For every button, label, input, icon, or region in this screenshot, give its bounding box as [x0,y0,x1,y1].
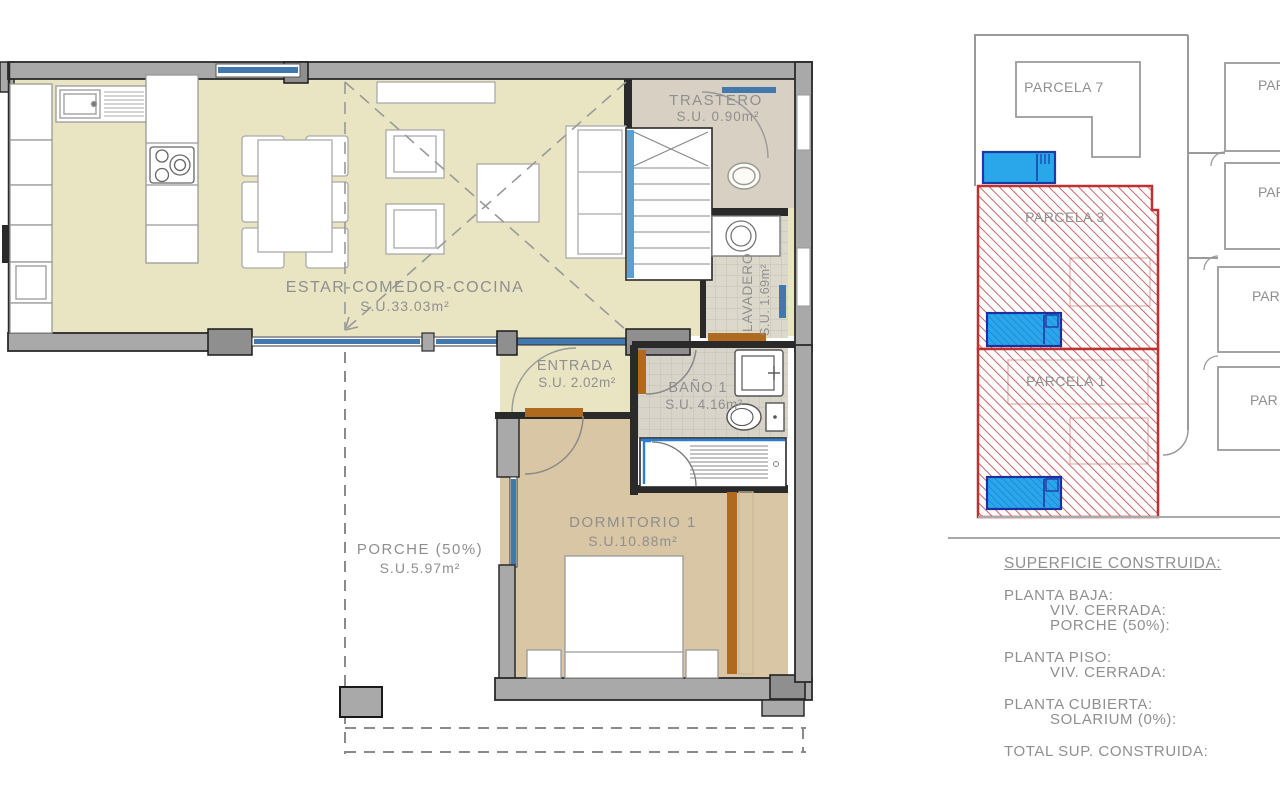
wardrobe [727,492,737,674]
bano-label: BAÑO 1 [668,379,727,396]
porche-area: S.U.5.97m² [380,560,461,576]
wall-right-notch-1 [797,95,810,150]
lavadero-area: S.U. 1.69m² [758,264,772,336]
legend-pb-porche: PORCHE (50%): [1004,618,1280,633]
pool-parcela-1 [987,477,1061,509]
floor-plan: ESTAR-COMEDOR-COCINA S.U.33.03m² TRASTER… [0,62,812,754]
wall-bath-west [630,345,638,495]
legend-pp-viv: VIV. CERRADA: [1004,665,1280,680]
bano-area: S.U. 4.16m² [665,397,743,412]
plan-sheet: ESTAR-COMEDOR-COCINA S.U.33.03m² TRASTER… [0,0,1280,800]
estar-label: ESTAR-COMEDOR-COCINA [286,279,525,296]
lavadero-window-glass [779,285,786,318]
dormitorio-label: DORMITORIO 1 [569,514,697,531]
pillar-bedroom-west [497,415,519,477]
pillar-bottom-1 [208,329,252,355]
coffee-table [477,164,539,222]
porche-label: PORCHE (50%) [357,541,483,558]
site-door-arc-2 [1211,152,1225,166]
shower [640,438,786,487]
dormitorio-area: S.U.10.88m² [588,533,678,549]
wall-bottom-left [8,333,210,351]
road-lines [948,517,1280,538]
site-door-arc-1 [1163,430,1188,455]
wall-bath-north [632,341,795,348]
bath-door-leaf [638,350,646,394]
window-bedroom-glass [511,479,516,565]
legend-pc-solarium: SOLARIUM (0%): [1004,712,1280,727]
legend-pb-viv: VIV. CERRADA: [1004,603,1280,618]
pillar-entrada-nw [497,331,517,355]
wall-bedroom-south [495,678,812,700]
legend-planta-cubierta: PLANTA CUBIERTA: [1004,697,1280,712]
nightstand-right [686,650,718,678]
window-south-1-glass [254,339,420,344]
dining-set [242,136,348,268]
entrada-area: S.U. 2.02m² [538,375,616,390]
parcela-1-label: PARCELA 1 [1026,373,1106,389]
legend-title: SUPERFICIE CONSTRUIDA: [1004,556,1280,571]
wall-top [8,62,812,79]
dining-table [258,140,332,252]
legend-planta-baja: PLANTA BAJA: [1004,588,1280,603]
window-top-glass [218,67,298,73]
stairs-glass [627,130,634,278]
wall-right-bottom [795,345,812,682]
stairs [626,128,712,280]
stove-icon [150,147,194,183]
window-south-3-glass [504,338,628,345]
door-bedroom-leaf [525,408,583,417]
sink-drainboard [104,92,144,116]
entrada-label: ENTRADA [537,358,613,374]
nightstand-left [527,650,561,678]
trastero-area: S.U. 0.90m² [676,109,759,124]
site-door-arc-4 [1204,356,1218,370]
parcela-3-label: PARCELA 3 [1025,209,1105,225]
legend-planta-piso: PLANTA PISO: [1004,650,1280,665]
porch-pillar [340,687,382,717]
legend-total: TOTAL SUP. CONSTRUIDA: [1004,744,1280,759]
parcela-7-outline [1016,62,1140,157]
parcela-partial-2-label: PAR [1258,184,1280,200]
lavadero-label: LAVADERO [740,252,755,332]
parcela-partial-4-label: PAR [1250,392,1278,408]
entrada-floor [500,335,632,413]
parcela-partial-3-label: PAR [1252,288,1280,304]
estar-area: S.U.33.03m² [360,298,450,314]
pool-top [983,152,1055,183]
wall-right-notch-2 [797,248,810,306]
wall-step-se [762,700,804,716]
pillar-bottom-2 [422,333,434,351]
window-south-2-glass [436,339,498,344]
wall-bedroom-west [499,565,515,685]
parcela-partial-1-label: PAR [1258,77,1280,93]
sideboard [377,82,495,103]
parcela-7-label: PARCELA 7 [1024,79,1104,95]
bed [565,556,683,678]
trastero-label: TRASTERO [669,92,763,109]
surface-legend: SUPERFICIE CONSTRUIDA: PLANTA BAJA: VIV.… [1004,556,1280,759]
site-plan: PARCELA 7 PAR PAR PAR PAR PARCELA 3 P [948,35,1280,538]
pool-parcela-3 [987,313,1061,346]
